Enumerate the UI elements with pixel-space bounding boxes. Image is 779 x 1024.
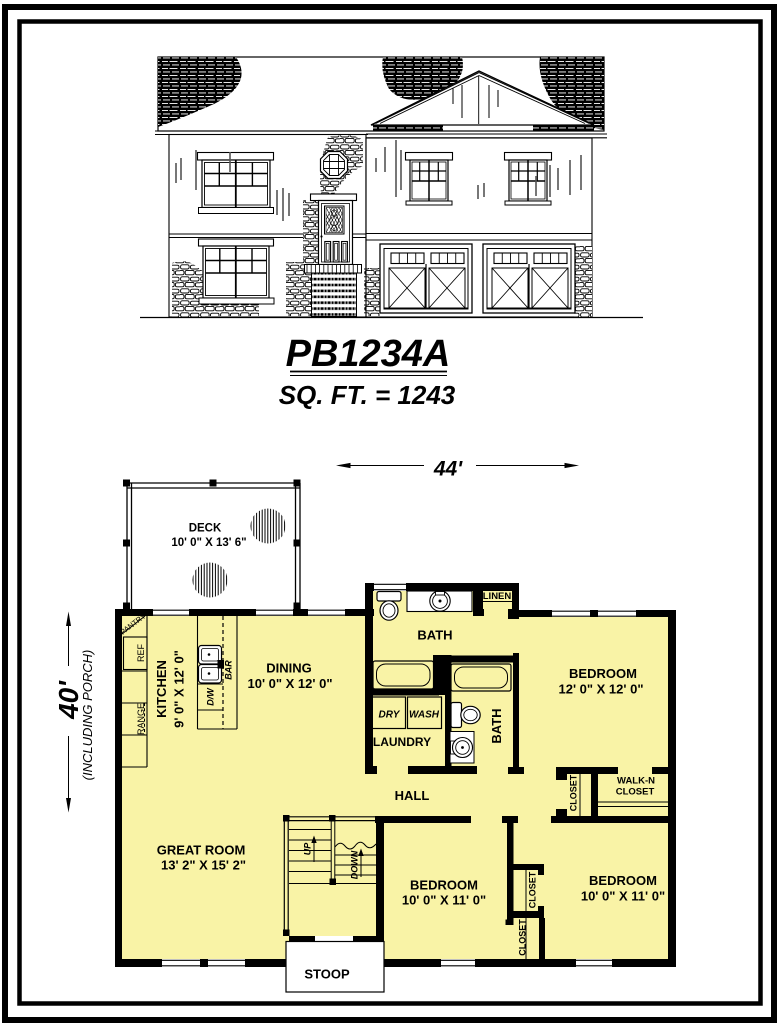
svg-text:(INCLUDING PORCH): (INCLUDING PORCH) <box>80 650 95 781</box>
svg-text:GREAT ROOM: GREAT ROOM <box>157 843 246 858</box>
svg-text:CLOSET: CLOSET <box>528 871 538 908</box>
svg-text:BEDROOM: BEDROOM <box>589 873 657 888</box>
svg-text:SQ. FT. = 1243: SQ. FT. = 1243 <box>279 380 456 410</box>
svg-text:RANGE: RANGE <box>136 703 146 735</box>
svg-text:10' 0" X 13' 6": 10' 0" X 13' 6" <box>171 537 246 549</box>
svg-text:PB1234A: PB1234A <box>286 333 451 375</box>
svg-text:10' 0" X 12' 0": 10' 0" X 12' 0" <box>247 676 332 691</box>
svg-text:WALK-N: WALK-N <box>617 776 655 787</box>
svg-text:UP: UP <box>303 842 313 855</box>
svg-text:CLOSET: CLOSET <box>569 774 579 811</box>
svg-text:D/W: D/W <box>206 687 216 706</box>
svg-text:BEDROOM: BEDROOM <box>569 666 637 681</box>
svg-text:DINING: DINING <box>266 661 312 676</box>
svg-text:CLOSET: CLOSET <box>518 919 528 956</box>
svg-text:13' 2" X 15' 2": 13' 2" X 15' 2" <box>161 858 246 873</box>
svg-text:44': 44' <box>433 458 463 481</box>
svg-text:LAUNDRY: LAUNDRY <box>373 735 431 749</box>
svg-text:BEDROOM: BEDROOM <box>410 878 478 893</box>
svg-text:WASH: WASH <box>409 710 440 721</box>
svg-text:HALL: HALL <box>395 788 430 803</box>
svg-text:LINEN: LINEN <box>483 591 512 602</box>
svg-text:REF: REF <box>136 643 146 662</box>
svg-text:BATH: BATH <box>489 708 504 743</box>
svg-text:DOWN: DOWN <box>350 850 360 879</box>
svg-text:DECK: DECK <box>189 523 222 535</box>
svg-text:DRY: DRY <box>379 710 401 721</box>
svg-text:9' 0" X 12' 0": 9' 0" X 12' 0" <box>172 650 187 728</box>
svg-text:10' 0" X 11' 0": 10' 0" X 11' 0" <box>581 889 665 904</box>
svg-text:12' 0" X 12' 0": 12' 0" X 12' 0" <box>558 682 643 697</box>
svg-text:STOOP: STOOP <box>304 967 350 982</box>
svg-text:BATH: BATH <box>417 628 452 643</box>
svg-text:CLOSET: CLOSET <box>616 787 655 798</box>
svg-text:KITCHEN: KITCHEN <box>154 660 169 718</box>
svg-text:BAR: BAR <box>224 660 234 680</box>
svg-text:10' 0" X 11' 0": 10' 0" X 11' 0" <box>402 893 486 908</box>
